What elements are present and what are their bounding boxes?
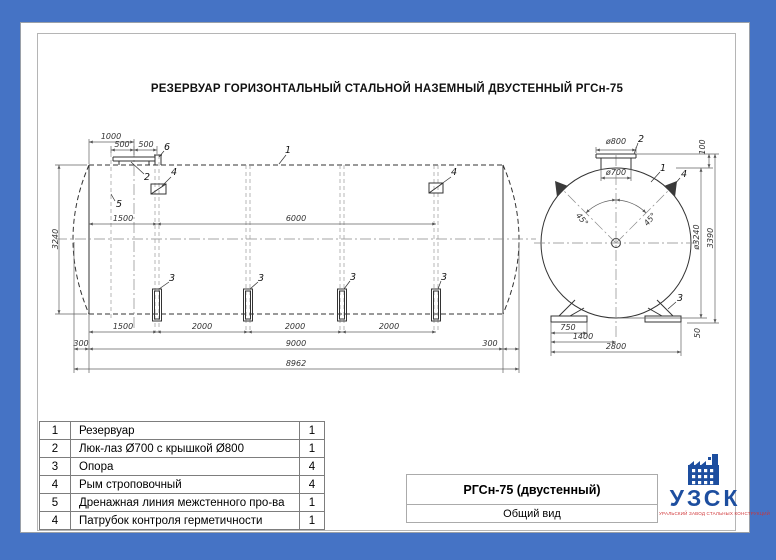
part-name: Рым строповочный <box>71 476 300 494</box>
side-callouts: 1 2 4 4 5 6 3 3 3 3 <box>111 142 457 289</box>
side-dim-left: 3240 <box>51 165 87 314</box>
dim-100: 100 <box>698 139 707 154</box>
callout-4-end: 4 <box>681 169 687 180</box>
end-view-dims: ø800 ø700 100 ø3240 3390 50 750 1400 280 <box>551 137 719 356</box>
part-no: 3 <box>40 458 71 476</box>
callout-3d-side: 3 <box>441 272 447 283</box>
dim-800: ø800 <box>605 137 626 146</box>
part-name: Дренажная линия межстенного про-ва <box>71 494 300 512</box>
uzsk-logo: УЗСК УРАЛЬСКИЙ ЗАВОД СТАЛЬНЫХ КОНСТРУКЦИ… <box>659 454 751 516</box>
dim-3240-end: ø3240 <box>692 224 701 250</box>
manhole-side <box>113 157 155 165</box>
lifting-eyes-side <box>151 183 443 194</box>
table-row: 4 Патрубок контроля герметичности 1 <box>40 512 325 530</box>
dim-2000a: 2000 <box>192 322 212 331</box>
dim-300l: 300 <box>73 339 88 348</box>
sheet-title: РЕЗЕРВУАР ГОРИЗОНТАЛЬНЫЙ СТАЛЬНОЙ НАЗЕМН… <box>37 83 737 95</box>
dim-9000: 9000 <box>286 339 306 348</box>
dim-300r: 300 <box>482 339 497 348</box>
dim-2000c: 2000 <box>379 322 399 331</box>
part-no: 5 <box>40 494 71 512</box>
part-qty: 1 <box>300 494 325 512</box>
dim-8962: 8962 <box>286 359 306 368</box>
callout-3c-side: 3 <box>350 272 356 283</box>
part-qty: 4 <box>300 458 325 476</box>
table-row: 4 Рым строповочный 4 <box>40 476 325 494</box>
callout-1-side: 1 <box>285 145 291 156</box>
dim-6000: 6000 <box>286 214 306 223</box>
table-row: 5 Дренажная линия межстенного про-ва 1 <box>40 494 325 512</box>
part-name: Резервуар <box>71 422 300 440</box>
side-dims-top: 1000 500 500 <box>89 132 157 164</box>
factory-icon <box>685 454 725 486</box>
nozzle-6 <box>154 155 162 165</box>
dim-1500-mid: 1500 <box>113 214 133 223</box>
dim-3240: 3240 <box>51 229 60 249</box>
part-no: 2 <box>40 440 71 458</box>
dim-1400: 1400 <box>573 332 593 341</box>
callout-5-side: 5 <box>116 199 122 210</box>
callout-3a-side: 3 <box>169 273 175 284</box>
side-view-tank-outline <box>56 165 536 314</box>
dim-500b: 500 <box>138 140 153 149</box>
logo-name: УЗСК <box>659 487 751 510</box>
callout-4a-side: 4 <box>171 167 177 178</box>
dim-700: ø700 <box>605 168 626 177</box>
callout-2-end: 2 <box>638 134 644 145</box>
part-no: 4 <box>40 476 71 494</box>
logo-tagline: УРАЛЬСКИЙ ЗАВОД СТАЛЬНЫХ КОНСТРУКЦИЙ <box>659 511 751 516</box>
title-block: РГСн-75 (двустенный) Общий вид <box>406 474 658 523</box>
callout-3-end: 3 <box>677 293 683 304</box>
part-name: Опора <box>71 458 300 476</box>
part-name: Люк-лаз Ø700 с крышкой Ø800 <box>71 440 300 458</box>
part-qty: 1 <box>300 422 325 440</box>
part-qty: 1 <box>300 440 325 458</box>
dim-45-left: 45° <box>574 211 590 228</box>
callout-6-side: 6 <box>164 142 170 153</box>
dim-750: 750 <box>560 323 575 332</box>
side-dims-mid: 1500 6000 <box>89 214 436 224</box>
view-name: Общий вид <box>407 505 657 523</box>
table-row: 1 Резервуар 1 <box>40 422 325 440</box>
part-no: 4 <box>40 512 71 530</box>
dim-45-right: 45° <box>642 211 658 228</box>
table-row: 2 Люк-лаз Ø700 с крышкой Ø800 1 <box>40 440 325 458</box>
callout-2-side: 2 <box>144 172 150 183</box>
callout-4b-side: 4 <box>451 167 457 178</box>
part-qty: 1 <box>300 512 325 530</box>
dim-2800: 2800 <box>606 342 626 351</box>
table-row: 3 Опора 4 <box>40 458 325 476</box>
dim-1500-bot: 1500 <box>113 322 133 331</box>
drawing-sheet: РЕЗЕРВУАР ГОРИЗОНТАЛЬНЫЙ СТАЛЬНОЙ НАЗЕМН… <box>20 22 750 533</box>
side-dims-bottom: 1500 2000 2000 2000 300 9000 300 8962 <box>73 242 519 373</box>
part-name: Патрубок контроля герметичности <box>71 512 300 530</box>
callout-3b-side: 3 <box>258 273 264 284</box>
part-no: 1 <box>40 422 71 440</box>
technical-drawing: 1000 500 500 1500 6000 3240 <box>31 111 741 411</box>
model-designation: РГСн-75 (двустенный) <box>407 475 657 505</box>
parts-table: 1 Резервуар 1 2 Люк-лаз Ø700 с крышкой Ø… <box>39 421 325 530</box>
dim-500a: 500 <box>114 140 129 149</box>
callout-1-end: 1 <box>660 163 666 174</box>
dim-50: 50 <box>693 328 702 338</box>
dim-2000b: 2000 <box>285 322 305 331</box>
part-qty: 4 <box>300 476 325 494</box>
dim-3390: 3390 <box>706 228 715 248</box>
supports-side <box>153 289 441 321</box>
